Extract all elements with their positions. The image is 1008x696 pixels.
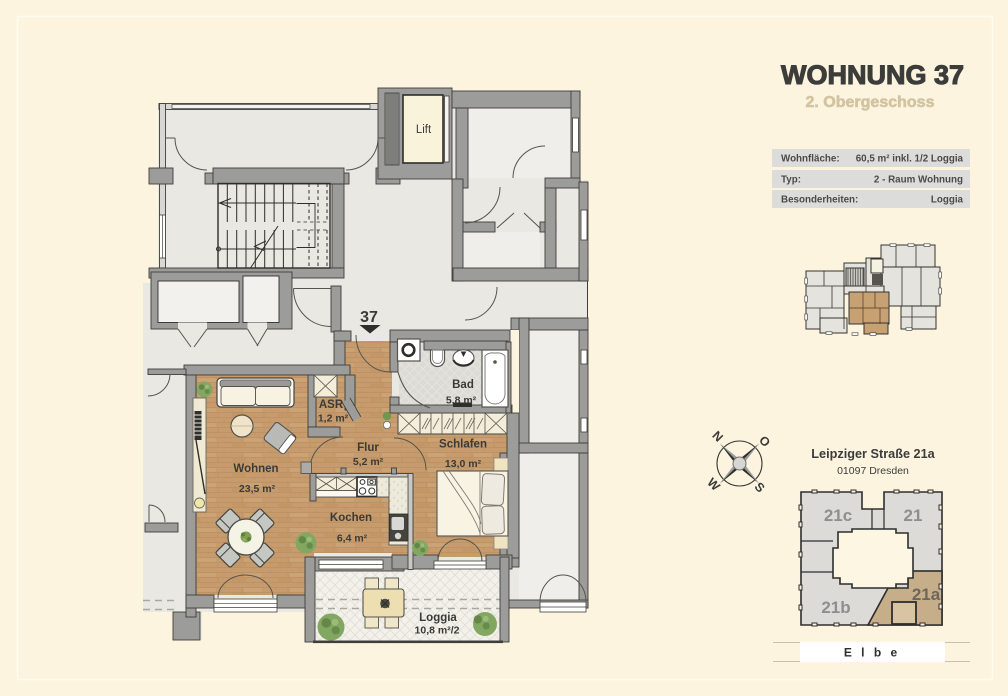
svg-text:21a: 21a: [912, 585, 941, 604]
svg-text:ASR: ASR: [319, 399, 344, 411]
svg-text:23,5 m²: 23,5 m²: [239, 483, 276, 495]
svg-text:5,2 m²: 5,2 m²: [353, 456, 384, 468]
svg-text:Bad: Bad: [452, 379, 474, 391]
svg-text:Leipziger Straße 21a: Leipziger Straße 21a: [811, 447, 935, 461]
svg-text:Besonderheiten:: Besonderheiten:: [781, 195, 858, 206]
svg-text:5,8 m²: 5,8 m²: [446, 395, 477, 407]
svg-text:Loggia: Loggia: [419, 612, 457, 624]
svg-text:21b: 21b: [821, 598, 850, 617]
svg-text:N: N: [709, 428, 725, 444]
svg-text:Schlafen: Schlafen: [439, 439, 487, 451]
svg-text:6,4 m²: 6,4 m²: [337, 533, 368, 545]
svg-text:2. Obergeschoss: 2. Obergeschoss: [806, 94, 935, 111]
svg-text:Wohnen: Wohnen: [233, 463, 278, 475]
svg-text:60,5 m² inkl. 1/2 Loggia: 60,5 m² inkl. 1/2 Loggia: [856, 154, 964, 165]
svg-text:2 - Raum Wohnung: 2 - Raum Wohnung: [874, 175, 963, 186]
svg-text:37: 37: [360, 309, 378, 326]
svg-text:01097 Dresden: 01097 Dresden: [837, 465, 909, 477]
svg-text:Kochen: Kochen: [330, 512, 372, 524]
svg-text:Wohnfläche:: Wohnfläche:: [781, 154, 840, 165]
svg-text:Typ:: Typ:: [781, 175, 801, 186]
svg-text:21: 21: [904, 506, 923, 525]
svg-text:1,2 m²: 1,2 m²: [318, 413, 349, 425]
svg-text:E l b e: E l b e: [844, 646, 900, 660]
svg-text:S: S: [752, 480, 768, 496]
svg-text:Loggia: Loggia: [931, 195, 964, 206]
svg-text:Flur: Flur: [357, 442, 379, 454]
svg-text:O: O: [756, 433, 773, 450]
svg-text:10,8 m²/2: 10,8 m²/2: [415, 625, 460, 637]
svg-text:Lift: Lift: [416, 124, 432, 136]
svg-text:W: W: [704, 475, 722, 493]
svg-text:21c: 21c: [824, 506, 852, 525]
svg-text:13,0 m²: 13,0 m²: [445, 458, 482, 470]
svg-text:WOHNUNG 37: WOHNUNG 37: [781, 60, 964, 90]
